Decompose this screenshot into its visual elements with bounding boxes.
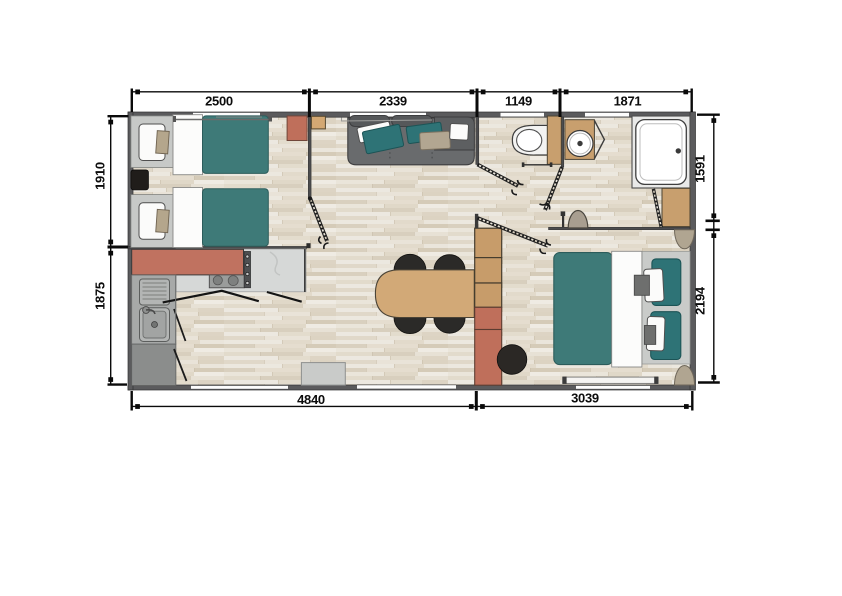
svg-text:1910: 1910 [93, 162, 108, 190]
svg-text:1875: 1875 [93, 282, 108, 310]
svg-text:2500: 2500 [205, 94, 233, 109]
svg-text:4840: 4840 [297, 392, 325, 407]
svg-text:2339: 2339 [379, 94, 407, 109]
svg-text:1149: 1149 [505, 94, 532, 109]
svg-text:1591: 1591 [693, 155, 708, 183]
svg-text:1871: 1871 [614, 94, 642, 109]
svg-text:2194: 2194 [693, 286, 708, 315]
svg-text:3039: 3039 [571, 391, 599, 406]
